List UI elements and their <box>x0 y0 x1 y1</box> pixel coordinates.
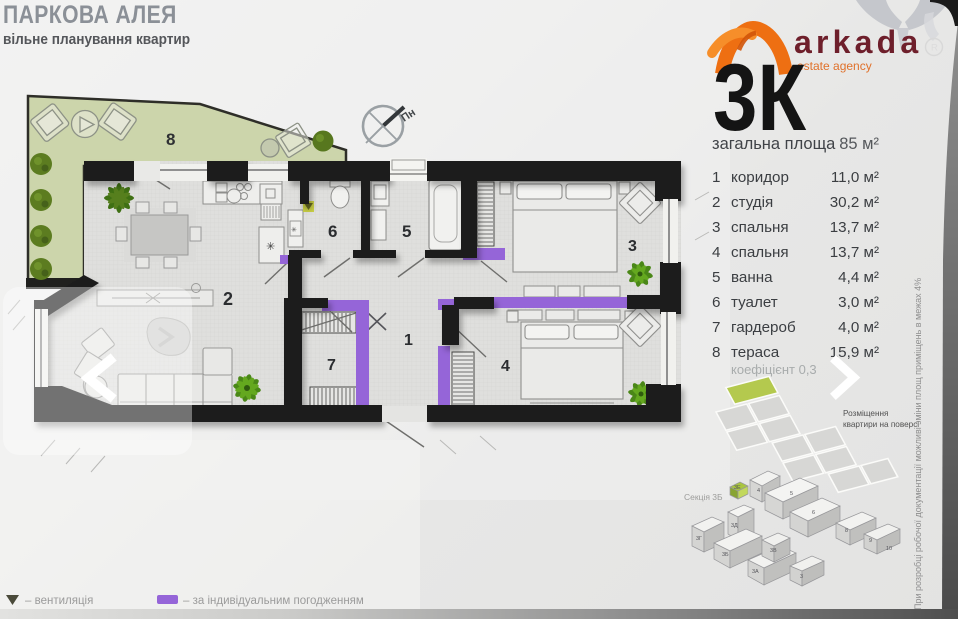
svg-text:3: 3 <box>628 238 637 255</box>
svg-text:Розміщення: Розміщення <box>843 409 888 418</box>
svg-text:30,2 м²: 30,2 м² <box>830 194 879 211</box>
svg-text:6: 6 <box>712 294 720 311</box>
svg-text:6: 6 <box>812 510 815 516</box>
svg-text:6: 6 <box>328 222 337 241</box>
svg-text:студія: студія <box>731 194 773 211</box>
svg-text:ванна: ванна <box>731 269 773 286</box>
svg-text:4,0 м²: 4,0 м² <box>838 319 879 336</box>
svg-text:Секція 3Б: Секція 3Б <box>684 492 723 502</box>
svg-text:8: 8 <box>845 528 848 534</box>
svg-text:arkada: arkada <box>794 24 922 60</box>
svg-text:– вентиляція: – вентиляція <box>25 595 93 607</box>
svg-text:R: R <box>931 43 938 54</box>
svg-text:вільне планування квартир: вільне планування квартир <box>3 31 190 47</box>
svg-text:спальня: спальня <box>731 244 789 261</box>
svg-text:4: 4 <box>712 244 720 261</box>
svg-text:1: 1 <box>712 169 720 186</box>
svg-text:7: 7 <box>327 357 336 374</box>
svg-text:13,7 м²: 13,7 м² <box>830 244 879 261</box>
svg-text:2: 2 <box>223 289 233 309</box>
svg-text:4,4 м²: 4,4 м² <box>838 269 879 286</box>
svg-text:5: 5 <box>712 269 720 286</box>
svg-text:3Д: 3Д <box>731 523 738 529</box>
svg-text:8: 8 <box>166 130 175 149</box>
svg-text:3В: 3В <box>770 548 777 554</box>
svg-text:8: 8 <box>712 344 720 361</box>
svg-text:3: 3 <box>712 219 720 236</box>
svg-text:загальна площа: загальна площа <box>712 135 836 153</box>
svg-text:3: 3 <box>800 574 803 580</box>
svg-text:10: 10 <box>886 546 892 552</box>
svg-text:При розробці робочої документа: При розробці робочої документації можлив… <box>913 278 923 610</box>
svg-text:3Б: 3Б <box>722 552 729 558</box>
svg-text:5: 5 <box>402 222 411 241</box>
svg-text:туалет: туалет <box>731 294 778 311</box>
svg-text:3Е: 3Е <box>734 485 741 491</box>
svg-text:спальня: спальня <box>731 219 789 236</box>
svg-text:– за індивідуальним погодження: – за індивідуальним погодженням <box>183 595 364 607</box>
svg-text:4: 4 <box>501 358 510 375</box>
svg-text:коефіцієнт 0,3: коефіцієнт 0,3 <box>731 362 817 377</box>
svg-text:гардероб: гардероб <box>731 319 796 336</box>
svg-text:13,7 м²: 13,7 м² <box>830 219 879 236</box>
svg-text:коридор: коридор <box>731 169 789 186</box>
svg-text:7: 7 <box>712 319 720 336</box>
svg-text:3А: 3А <box>752 569 759 575</box>
svg-text:ПАРКОВА АЛЕЯ: ПАРКОВА АЛЕЯ <box>3 0 177 28</box>
svg-text:квартири на поверсі: квартири на поверсі <box>843 420 919 429</box>
svg-text:4: 4 <box>757 488 760 494</box>
svg-text:3Г: 3Г <box>696 536 702 542</box>
svg-text:85 м²: 85 м² <box>839 135 879 153</box>
svg-text:2: 2 <box>712 194 720 211</box>
svg-text:тераса: тераса <box>731 344 780 361</box>
svg-text:9: 9 <box>869 538 872 544</box>
svg-text:3,0 м²: 3,0 м² <box>838 294 879 311</box>
svg-text:✳: ✳ <box>266 241 275 253</box>
svg-text:5: 5 <box>790 491 793 497</box>
svg-text:1: 1 <box>404 332 413 349</box>
svg-text:✳: ✳ <box>291 226 297 234</box>
svg-text:11,0 м²: 11,0 м² <box>831 169 879 186</box>
svg-text:estate agency: estate agency <box>797 59 872 73</box>
